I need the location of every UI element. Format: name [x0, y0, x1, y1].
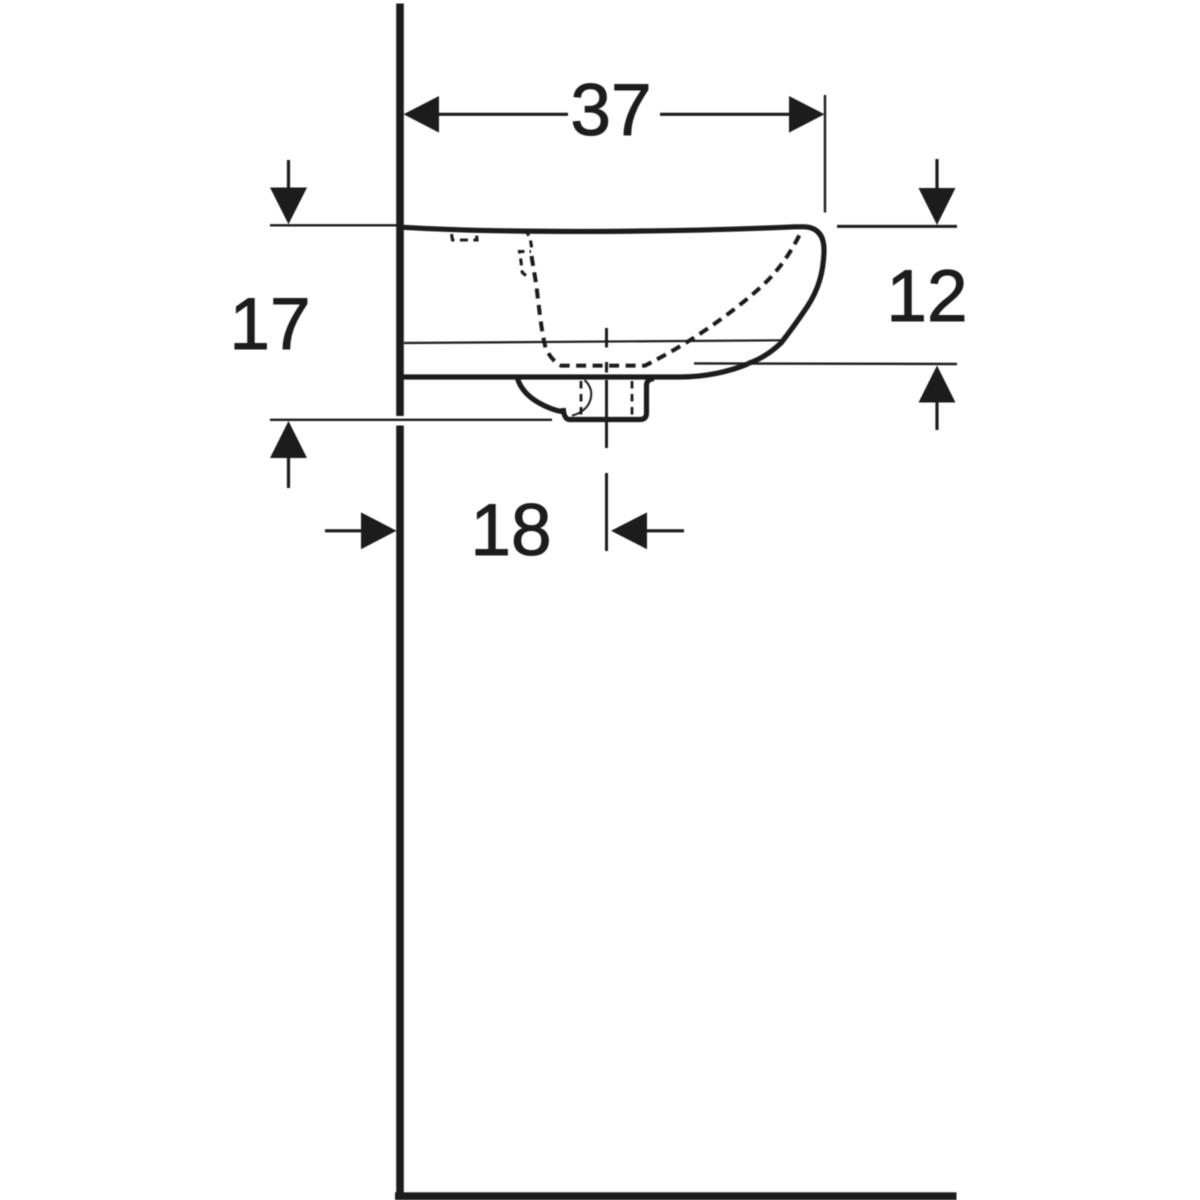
- svg-text:18: 18: [470, 490, 551, 571]
- svg-text:12: 12: [886, 256, 967, 337]
- svg-text:17: 17: [229, 284, 310, 365]
- svg-text:37: 37: [570, 70, 651, 151]
